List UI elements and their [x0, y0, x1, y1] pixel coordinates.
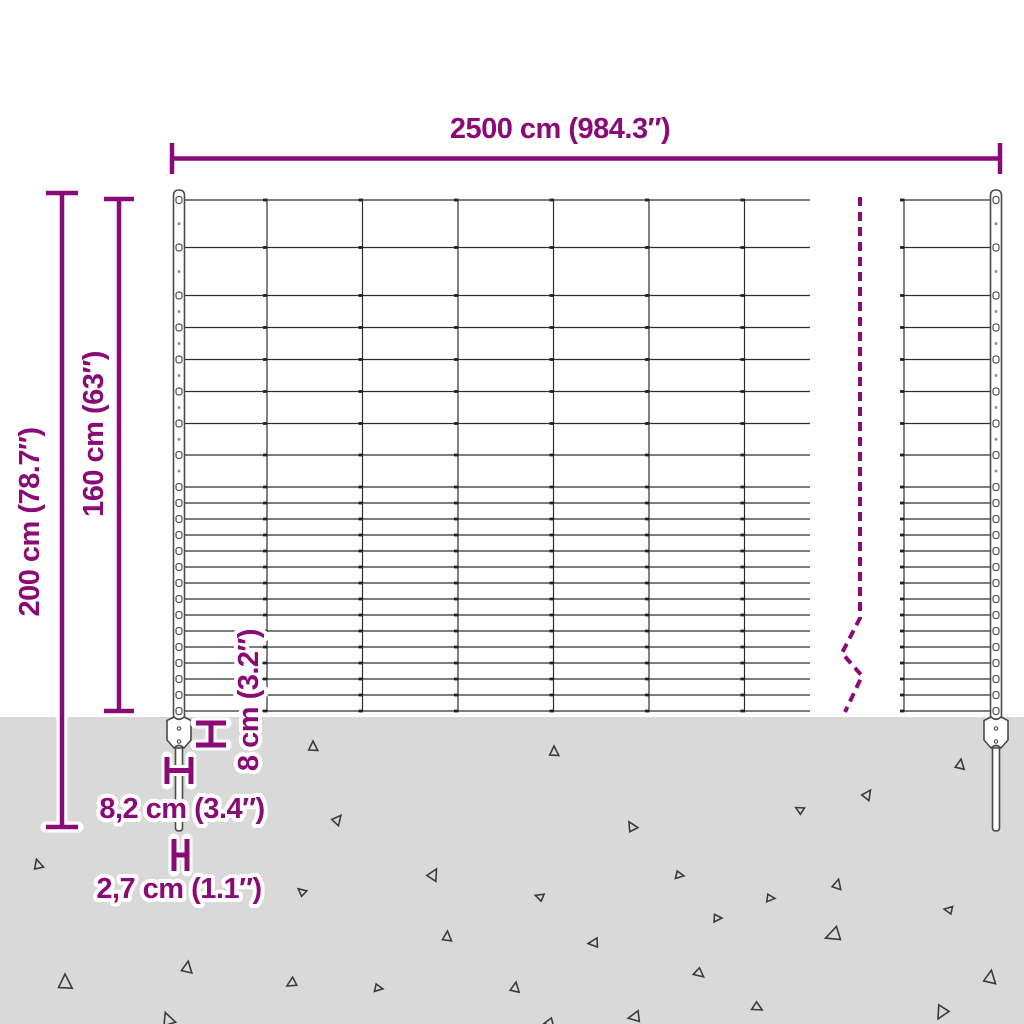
- wire-joint: [263, 246, 268, 249]
- wire-joint: [741, 694, 746, 697]
- wire-joint: [550, 646, 555, 649]
- wire-joint: [359, 598, 364, 601]
- wire-joint: [645, 294, 650, 297]
- wire-joint: [900, 390, 905, 393]
- wire-clip: [993, 612, 999, 619]
- wire-joint: [359, 390, 364, 393]
- wire-joint: [263, 294, 268, 297]
- wire-joint: [263, 598, 268, 601]
- wire-joint: [741, 246, 746, 249]
- wire-joint: [454, 390, 459, 393]
- wire-joint: [454, 246, 459, 249]
- wire-joint: [741, 422, 746, 425]
- wire-joint: [741, 710, 746, 713]
- wire-joint: [741, 678, 746, 681]
- dimension-line-total-width: [172, 143, 1000, 174]
- wire-clip: [176, 692, 182, 699]
- wire-joint: [645, 662, 650, 665]
- wire-joint: [454, 534, 459, 537]
- wire-joint: [550, 694, 555, 697]
- wire-joint: [263, 566, 268, 569]
- post-dot: [178, 342, 181, 345]
- wire-joint: [900, 550, 905, 553]
- wire-clip: [993, 356, 999, 363]
- wire-joint: [900, 246, 905, 249]
- wire-clip: [176, 580, 182, 587]
- wire-joint: [645, 422, 650, 425]
- wire-joint: [900, 614, 905, 617]
- wire-joint: [359, 454, 364, 457]
- wire-joint: [550, 582, 555, 585]
- wire-joint: [741, 662, 746, 665]
- wire-clip: [993, 452, 999, 459]
- wire-clip: [176, 676, 182, 683]
- wire-joint: [645, 566, 650, 569]
- wire-joint: [550, 710, 555, 713]
- post-dot: [995, 374, 998, 377]
- break-line: [842, 197, 862, 712]
- wire-joint: [741, 614, 746, 617]
- wire-clip: [993, 708, 999, 715]
- wire-clip: [993, 420, 999, 427]
- wire-joint: [741, 199, 746, 202]
- wire-joint: [900, 566, 905, 569]
- wire-joint: [900, 326, 905, 329]
- wire-clip: [176, 197, 182, 204]
- wire-joint: [645, 694, 650, 697]
- wire-joint: [263, 614, 268, 617]
- wire-clip: [176, 596, 182, 603]
- wire-joint: [741, 598, 746, 601]
- wire-joint: [550, 662, 555, 665]
- ground-spike: [993, 748, 1000, 831]
- post-dot: [995, 222, 998, 225]
- wire-clip: [176, 708, 182, 715]
- wire-joint: [550, 502, 555, 505]
- wire-joint: [900, 358, 905, 361]
- wire-joint: [454, 582, 459, 585]
- post-dot: [178, 222, 181, 225]
- wire-joint: [645, 614, 650, 617]
- wire-joint: [645, 199, 650, 202]
- wire-mesh: [173, 199, 1001, 713]
- wire-joint: [645, 630, 650, 633]
- wire-joint: [454, 694, 459, 697]
- wire-joint: [359, 710, 364, 713]
- wire-joint: [550, 358, 555, 361]
- wire-joint: [454, 454, 459, 457]
- post-dot: [995, 470, 998, 473]
- wire-clip: [993, 532, 999, 539]
- wire-joint: [454, 199, 459, 202]
- wire-clip: [176, 420, 182, 427]
- wire-joint: [550, 326, 555, 329]
- label-total-height: 200 cm (78.7″): [14, 427, 46, 616]
- wire-joint: [900, 582, 905, 585]
- wire-joint: [550, 422, 555, 425]
- wire-joint: [454, 678, 459, 681]
- wire-joint: [550, 630, 555, 633]
- post-dot: [995, 270, 998, 273]
- wire-joint: [454, 502, 459, 505]
- wire-joint: [645, 678, 650, 681]
- wire-joint: [645, 502, 650, 505]
- wire-joint: [359, 694, 364, 697]
- label-total-width: 2500 cm (984.3″): [450, 113, 670, 145]
- wire-joint: [550, 614, 555, 617]
- wire-joint: [359, 662, 364, 665]
- wire-clip: [176, 612, 182, 619]
- wire-joint: [359, 678, 364, 681]
- wire-joint: [454, 662, 459, 665]
- wire-joint: [900, 199, 905, 202]
- wire-clip: [176, 388, 182, 395]
- wire-joint: [741, 358, 746, 361]
- wire-joint: [550, 199, 555, 202]
- wire-joint: [263, 518, 268, 521]
- label-plate-height: 8 cm (3.2″): [233, 629, 265, 771]
- wire-clip: [176, 292, 182, 299]
- wire-joint: [645, 358, 650, 361]
- wire-joint: [263, 454, 268, 457]
- wire-joint: [454, 630, 459, 633]
- wire-clip: [993, 644, 999, 651]
- wire-joint: [645, 646, 650, 649]
- post-dot: [995, 438, 998, 441]
- wire-joint: [454, 326, 459, 329]
- wire-joint: [741, 646, 746, 649]
- label-spike-width: 2,7 cm (1.1″): [96, 873, 261, 905]
- wire-joint: [645, 326, 650, 329]
- wire-joint: [263, 550, 268, 553]
- wire-joint: [359, 566, 364, 569]
- wire-joint: [900, 646, 905, 649]
- post-dot: [178, 374, 181, 377]
- wire-clip: [993, 596, 999, 603]
- wire-clip: [176, 244, 182, 251]
- wire-joint: [454, 710, 459, 713]
- post-dot: [995, 310, 998, 313]
- wire-clip: [176, 500, 182, 507]
- post-dot: [178, 470, 181, 473]
- wire-joint: [645, 486, 650, 489]
- wire-joint: [741, 566, 746, 569]
- wire-joint: [454, 294, 459, 297]
- wire-joint: [741, 486, 746, 489]
- wire-joint: [359, 614, 364, 617]
- wire-joint: [263, 486, 268, 489]
- wire-joint: [454, 518, 459, 521]
- wire-clip: [993, 388, 999, 395]
- wire-clip: [176, 532, 182, 539]
- label-mesh-height: 160 cm (63″): [78, 351, 110, 517]
- wire-joint: [645, 454, 650, 457]
- wire-clip: [176, 452, 182, 459]
- wire-clip: [993, 500, 999, 507]
- wire-clip: [176, 548, 182, 555]
- wire-clip: [993, 564, 999, 571]
- wire-joint: [454, 614, 459, 617]
- wire-clip: [993, 484, 999, 491]
- wire-joint: [741, 390, 746, 393]
- wire-joint: [550, 550, 555, 553]
- wire-joint: [359, 199, 364, 202]
- wire-joint: [741, 518, 746, 521]
- wire-joint: [454, 550, 459, 553]
- wire-joint: [900, 518, 905, 521]
- wire-joint: [741, 326, 746, 329]
- wire-joint: [359, 550, 364, 553]
- wire-joint: [263, 534, 268, 537]
- wire-clip: [176, 660, 182, 667]
- wire-joint: [454, 598, 459, 601]
- wire-joint: [263, 199, 268, 202]
- wire-joint: [550, 486, 555, 489]
- post-dot: [995, 406, 998, 409]
- wire-joint: [550, 246, 555, 249]
- wire-joint: [359, 518, 364, 521]
- wire-joint: [263, 390, 268, 393]
- wire-joint: [741, 294, 746, 297]
- wire-joint: [900, 630, 905, 633]
- wire-joint: [359, 582, 364, 585]
- wire-joint: [550, 518, 555, 521]
- wire-clip: [993, 244, 999, 251]
- wire-joint: [741, 550, 746, 553]
- wire-clip: [176, 484, 182, 491]
- wire-joint: [454, 358, 459, 361]
- wire-joint: [900, 694, 905, 697]
- wire-clip: [176, 516, 182, 523]
- wire-joint: [359, 646, 364, 649]
- wire-joint: [454, 646, 459, 649]
- wire-joint: [900, 534, 905, 537]
- wire-joint: [359, 326, 364, 329]
- post-dot: [178, 270, 181, 273]
- wire-clip: [176, 324, 182, 331]
- wire-joint: [741, 454, 746, 457]
- fence-diagram-canvas: 2500 cm (984.3″) 200 cm (78.7″) 160 cm (…: [0, 0, 1024, 1024]
- wire-joint: [645, 710, 650, 713]
- wire-joint: [454, 566, 459, 569]
- wire-joint: [900, 710, 905, 713]
- wire-joint: [900, 502, 905, 505]
- wire-clip: [993, 676, 999, 683]
- wire-joint: [359, 246, 364, 249]
- wire-joint: [550, 566, 555, 569]
- wire-clip: [993, 660, 999, 667]
- post-dot: [178, 438, 181, 441]
- wire-clip: [176, 644, 182, 651]
- wire-clip: [993, 580, 999, 587]
- wire-joint: [900, 662, 905, 665]
- wire-joint: [454, 486, 459, 489]
- wire-joint: [263, 326, 268, 329]
- wire-joint: [645, 518, 650, 521]
- wire-joint: [645, 582, 650, 585]
- wire-clip: [993, 324, 999, 331]
- wire-joint: [900, 422, 905, 425]
- wire-joint: [741, 630, 746, 633]
- wire-joint: [359, 630, 364, 633]
- wire-joint: [741, 582, 746, 585]
- wire-joint: [550, 598, 555, 601]
- wire-clip: [176, 356, 182, 363]
- wire-joint: [359, 294, 364, 297]
- label-plate-width: 8,2 cm (3.4″): [99, 793, 264, 825]
- wire-clip: [993, 516, 999, 523]
- wire-joint: [645, 246, 650, 249]
- wire-joint: [645, 598, 650, 601]
- wire-joint: [900, 598, 905, 601]
- wire-joint: [550, 534, 555, 537]
- wire-clip: [993, 548, 999, 555]
- post-dot: [178, 310, 181, 313]
- wire-joint: [359, 422, 364, 425]
- wire-joint: [359, 502, 364, 505]
- wire-clip: [993, 692, 999, 699]
- wire-joint: [263, 502, 268, 505]
- wire-joint: [359, 534, 364, 537]
- wire-clip: [176, 628, 182, 635]
- wire-joint: [900, 486, 905, 489]
- wire-joint: [454, 422, 459, 425]
- wire-joint: [359, 358, 364, 361]
- wire-joint: [645, 534, 650, 537]
- wire-joint: [263, 422, 268, 425]
- wire-joint: [645, 390, 650, 393]
- product-dimension-diagram: 2500 cm (984.3″) 200 cm (78.7″) 160 cm (…: [0, 0, 1024, 1024]
- wire-joint: [263, 582, 268, 585]
- post-dot: [178, 406, 181, 409]
- wire-joint: [645, 550, 650, 553]
- wire-joint: [741, 534, 746, 537]
- wire-joint: [263, 358, 268, 361]
- wire-joint: [900, 678, 905, 681]
- wire-joint: [550, 454, 555, 457]
- wire-joint: [900, 294, 905, 297]
- wire-clip: [993, 628, 999, 635]
- wire-joint: [741, 502, 746, 505]
- wire-clip: [176, 564, 182, 571]
- wire-joint: [900, 454, 905, 457]
- wire-joint: [359, 486, 364, 489]
- post-dot: [995, 342, 998, 345]
- ground-area: [0, 717, 1024, 1024]
- wire-joint: [550, 294, 555, 297]
- wire-clip: [993, 292, 999, 299]
- wire-clip: [993, 197, 999, 204]
- wire-joint: [550, 390, 555, 393]
- wire-joint: [550, 678, 555, 681]
